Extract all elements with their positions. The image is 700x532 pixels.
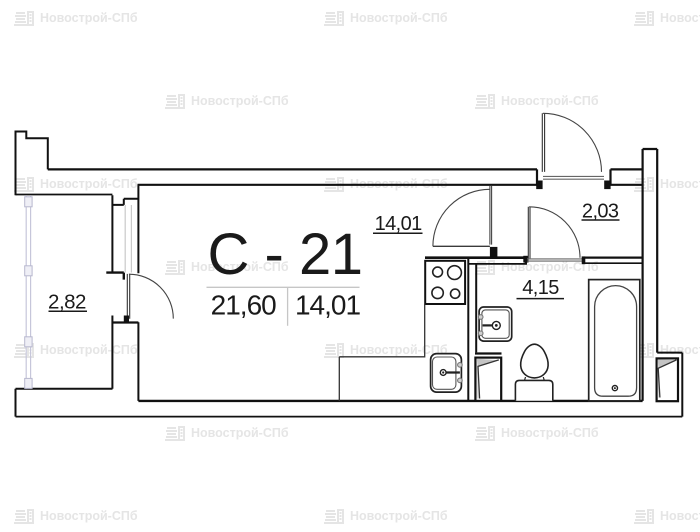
- svg-text:Новострой-СПб: Новострой-СПб: [660, 11, 700, 25]
- svg-text:Новострой-СПб: Новострой-СПб: [350, 509, 448, 523]
- svg-text:С - 21: С - 21: [208, 222, 363, 287]
- svg-text:Новострой-СПб: Новострой-СПб: [350, 11, 448, 25]
- svg-text:Новострой-СПб: Новострой-СПб: [660, 177, 700, 191]
- svg-text:Новострой-СПб: Новострой-СПб: [501, 94, 599, 108]
- svg-text:Новострой-СПб: Новострой-СПб: [501, 426, 599, 440]
- svg-text:2,82: 2,82: [48, 290, 86, 313]
- svg-text:21,60: 21,60: [211, 289, 276, 320]
- svg-text:Новострой-СПб: Новострой-СПб: [40, 509, 138, 523]
- svg-text:Новострой-СПб: Новострой-СПб: [660, 509, 700, 523]
- svg-text:Новострой-СПб: Новострой-СПб: [191, 426, 289, 440]
- svg-text:Новострой-СПб: Новострой-СПб: [660, 343, 700, 357]
- svg-text:2,03: 2,03: [582, 200, 619, 222]
- svg-text:14,01: 14,01: [295, 289, 360, 320]
- svg-text:Новострой-СПб: Новострой-СПб: [40, 343, 138, 357]
- svg-text:Новострой-СПб: Новострой-СПб: [40, 11, 138, 25]
- svg-text:4,15: 4,15: [522, 277, 559, 299]
- svg-text:Новострой-СПб: Новострой-СПб: [40, 177, 138, 191]
- svg-text:14,01: 14,01: [375, 213, 423, 235]
- svg-text:Новострой-СПб: Новострой-СПб: [191, 94, 289, 108]
